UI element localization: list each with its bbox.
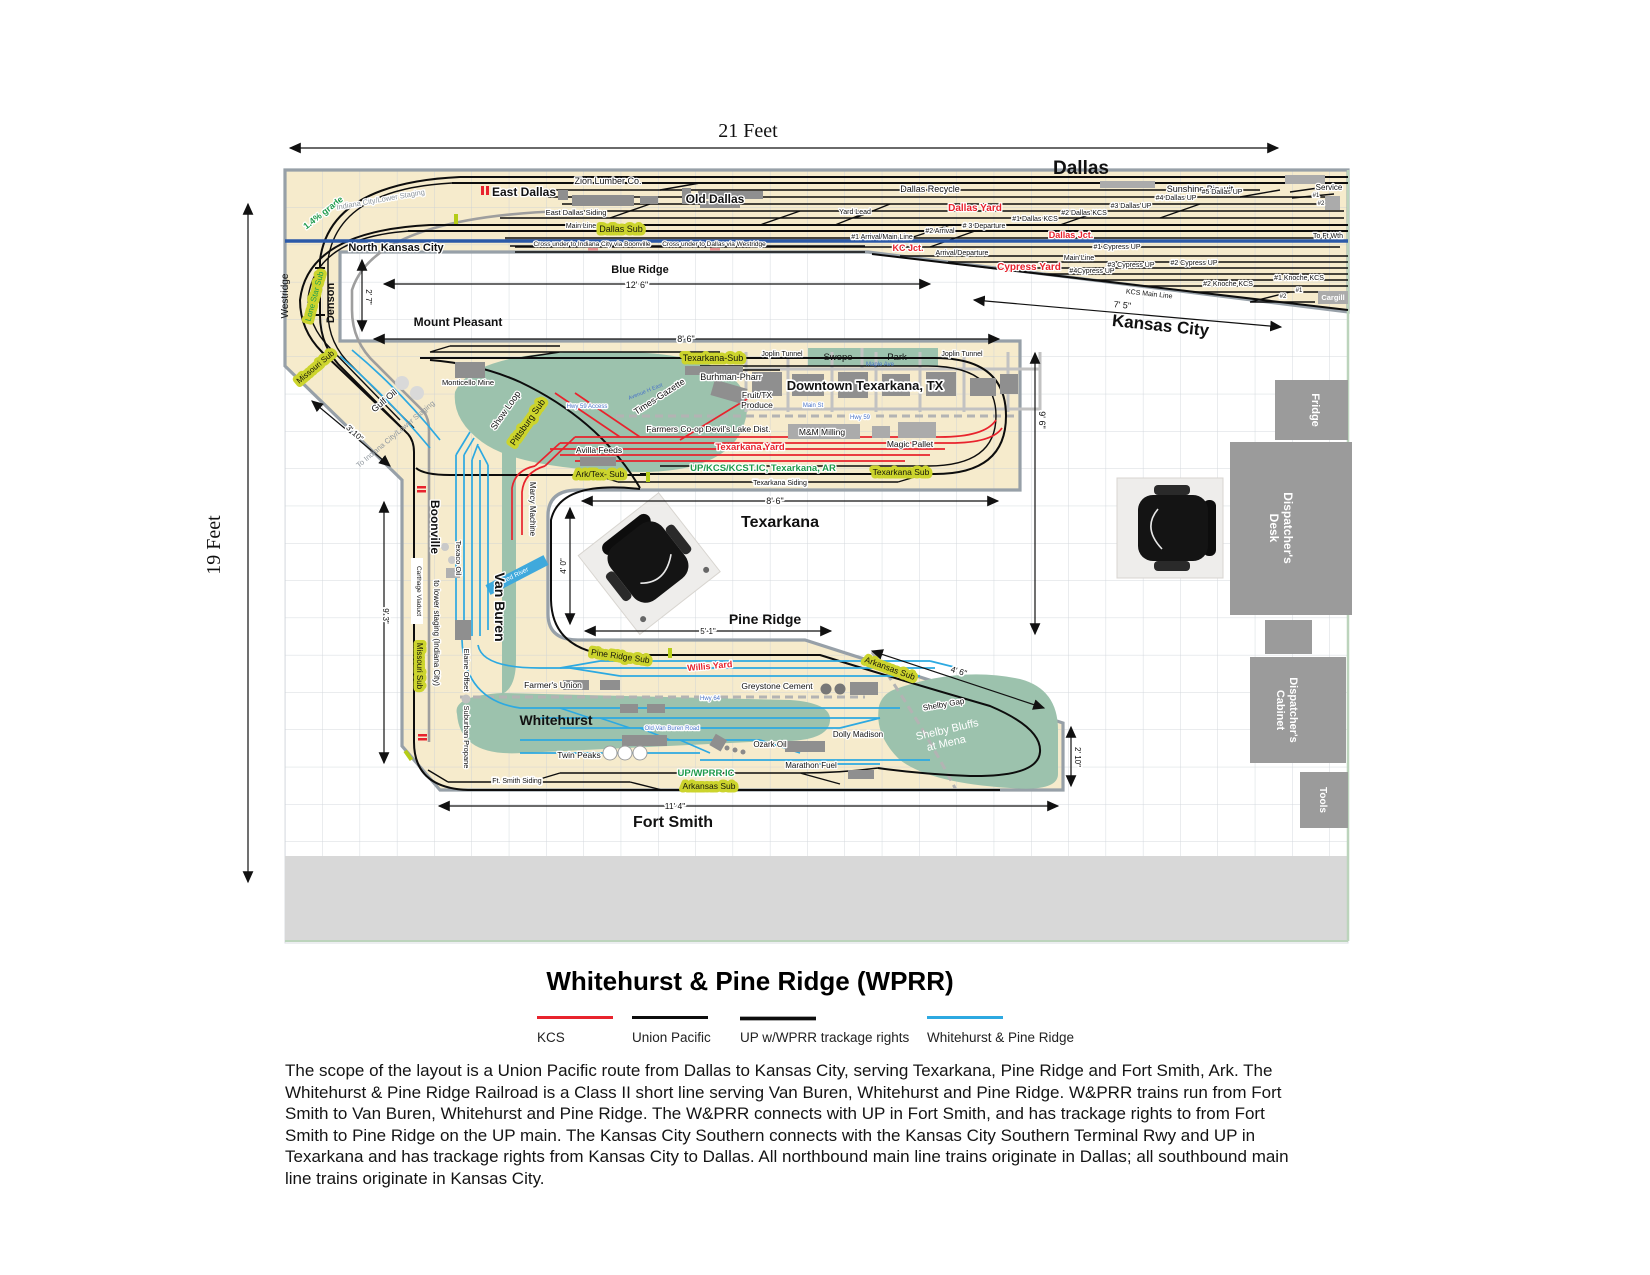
track-d1-label: #1 Dallas KCS [1012, 216, 1058, 223]
ark-tex-sub-label: Ark/Tex- Sub [576, 469, 625, 479]
side-table [1265, 620, 1312, 654]
track-d2-label: #2 Dallas KCS [1061, 210, 1107, 217]
hwy59-access-label: Hwy 59 Access [567, 404, 608, 410]
legend-wprr-label: Whitehurst & Pine Ridge [927, 1030, 1074, 1045]
town-westridge: Westridge [280, 273, 291, 318]
legend-wprr-swatch [927, 1016, 1003, 1019]
farmers-union-label: Farmer's Union [524, 680, 582, 690]
burhman-pharr-label: Burhman-Pharr [700, 372, 762, 382]
texarkana-sub-n-label: Texarkana-Sub [683, 353, 744, 363]
page-title: Whitehurst & Pine Ridge (WPRR) [400, 966, 1100, 997]
up-wprr-ic-label: UP/WPRR IC [678, 768, 735, 779]
missouri-sub-label-2: Missouri Sub [415, 643, 424, 690]
dim-8-6-tx: 8' 6" [766, 496, 783, 506]
main-line-label-1: Main Line [566, 223, 596, 230]
texarkana-siding-label: Texarkana Siding [753, 480, 807, 487]
dim-5-1: 5' 1" [700, 627, 716, 636]
town-denson: Denson [325, 283, 337, 324]
track-plan-page: Fridge Dispatcher'sDesk Dispatcher'sCabi… [0, 0, 1650, 1275]
track-kno1-label: #1 Knoche KCS [1274, 275, 1324, 282]
dim-2-7: 2' 7" [364, 289, 373, 305]
dallas-yard-label: Dallas Yard [948, 203, 1002, 214]
zion-lumber-label: Zion Lumber Co. [574, 176, 641, 186]
texaco-oil-label: Texaco Oil [454, 540, 463, 575]
legend-up-wprr-label: UP w/WPRR trackage rights [740, 1030, 909, 1045]
up-kcs-ic-label: UP/KCS/KCST.IC, Texarkana, AR [690, 463, 836, 474]
to-ft-wth-label: To Ft Wth [1313, 233, 1343, 240]
texarkana-sub-s-label: Texarkana Sub [873, 467, 930, 477]
dallas-sub-label: Dallas Sub [599, 224, 643, 234]
dim-4-0: 4' 0" [559, 558, 568, 574]
ozark-oil-label: Ozark Oil [753, 740, 787, 749]
cross-under-westridge-label: Cross under to Dallas via Westridge [662, 241, 766, 248]
legend-kcs-swatch [537, 1016, 613, 1019]
main-line-label-2: Main Line [1064, 255, 1094, 262]
east-dallas-siding-label: East Dallas Siding [546, 208, 607, 217]
service-2-label: #2 [1318, 201, 1325, 207]
town-van-buren: Van Buren [492, 572, 508, 641]
town-boonville: Boonville [428, 500, 442, 554]
track-d5-label: #5 Dallas UP [1202, 189, 1243, 196]
track-arr1-label: #1 Arrival/Main Line [851, 234, 913, 241]
avilla-feeds-label: Avilla Feeds [576, 445, 622, 455]
town-fort-smith: Fort Smith [633, 814, 713, 831]
town-dallas: Dallas [1053, 158, 1109, 179]
track-cyp1-label: #1 Cypress UP [1093, 244, 1140, 251]
marathon-fuel-label: Marathon Fuel [785, 761, 837, 770]
texarkana-yard-label: Texarkana Yard [715, 442, 785, 453]
tools-label: Tools [1317, 787, 1328, 813]
town-texarkana: Texarkana [741, 514, 819, 531]
width-dim-label: 21 Feet [718, 120, 778, 142]
layout-diagram: Fridge Dispatcher'sDesk Dispatcher'sCabi… [0, 0, 1650, 950]
town-north-kansas-city: North Kansas City [348, 242, 444, 254]
hwy59-label: Hwy 59 [850, 415, 871, 421]
dallas-jct-label: Dallas Jct. [1049, 230, 1094, 240]
office-chair-dispatcher [1117, 478, 1223, 578]
magic-pallet-label: Magic Pallet [887, 439, 934, 449]
dim-12-6: 12' 6" [626, 280, 648, 290]
track-dep3-label: # 3 Departure [963, 223, 1006, 230]
town-mount-pleasant: Mount Pleasant [414, 315, 503, 329]
town-old-dallas: Old Dallas [686, 192, 745, 206]
joplin-tunnel-label-2: Joplin Tunnel [941, 351, 983, 358]
service-label: Service [1316, 183, 1343, 192]
track-arr2-label: #2 Arrival [925, 228, 955, 235]
track-d3-label: #3 Dallas UP [1111, 203, 1152, 210]
dolly-madison-label: Dolly Madison [833, 730, 883, 739]
dim-9-3: 9' 3" [381, 608, 390, 624]
floor-strip [285, 856, 1348, 941]
yard-lead-label: Yard Lead [839, 209, 871, 216]
dim-8-6-mp: 8' 6" [677, 334, 694, 344]
joplin-tunnel-label-1: Joplin Tunnel [761, 351, 803, 358]
cargill-2-label: #2 [1280, 294, 1287, 300]
dim-9-6: 9' 6" [1037, 411, 1047, 428]
kc-jct-label: KC Jct. [892, 243, 923, 253]
track-kno2-label: #2 Knoche KCS [1203, 281, 1253, 288]
hwy64-label: Hwy 64 [700, 696, 721, 702]
dim-2-10: 2' 10" [1073, 747, 1082, 767]
height-dim-label: 19 Feet [203, 515, 225, 575]
legend-kcs-label: KCS [537, 1030, 565, 1045]
dim-7-5: 7' 5" [1113, 299, 1131, 311]
track-d4-label: #4 Dallas UP [1156, 195, 1197, 202]
marcy-machine-label: Marcy Machine [528, 482, 537, 537]
suburban-propane-label: Suburban Propane [462, 706, 471, 769]
ft-smith-siding-label: Ft. Smith Siding [492, 778, 542, 785]
devils-lake-label: Devil's Lake Dist. [706, 424, 771, 434]
cargill-label: Cargill [1321, 293, 1344, 302]
cypress-yard-label: Cypress Yard [997, 262, 1061, 273]
mm-milling-label: M&M Milling [799, 427, 846, 437]
cargill-1-label: #1 [1296, 288, 1303, 294]
downtown-texarkana-label: Downtown Texarkana, TX [787, 378, 944, 393]
arkansas-sub-label-2: Arkansas Sub [683, 781, 736, 791]
town-whitehurst: Whitehurst [519, 712, 592, 728]
arrival-departure-label: Arrival/Departure [936, 250, 989, 257]
town-east-dallas: East Dallas [492, 185, 556, 199]
to-lower-staging-label: to lower staging (Indiana City) [432, 580, 441, 686]
dim-11-4: 11' 4" [665, 801, 686, 811]
elaine-offset-label: Elaine Offset [462, 649, 471, 693]
monticello-mine-label: Monticello Mine [442, 378, 494, 387]
legend-up-swatch [632, 1016, 708, 1019]
dallas-recycle-label: Dallas Recycle [900, 184, 960, 194]
town-blue-ridge: Blue Ridge [611, 264, 668, 276]
cross-under-boonville-label: Cross under to Indiana City via Boonvill… [533, 241, 650, 248]
twin-peaks-label: Twin Peaks [557, 750, 600, 760]
legend-up-label: Union Pacific [632, 1030, 711, 1045]
track-cyp2-label: #2 Cypress UP [1170, 260, 1217, 267]
greystone-cement-label: Greystone Cement [741, 681, 813, 691]
old-van-buren-road-label: Old Van Buren Road [645, 726, 700, 732]
swope-label: Swope [823, 352, 852, 363]
maple-ave-label: Maple Ave [866, 362, 895, 368]
main-st-label: Main St [803, 403, 824, 409]
legend-up-wprr-swatch [740, 1016, 816, 1021]
track-cyp4-label: #4Cypress UP [1069, 268, 1114, 275]
track-cyp3-label: #3 Cypress UP [1107, 262, 1154, 269]
fruit-tx-label: Fruit/TXProduce [741, 390, 773, 410]
carthage-viaduct-label: Carthage Viaduct [415, 566, 422, 616]
farmers-coop-label: Farmers Co-op [646, 424, 703, 434]
fridge-label: Fridge [1309, 393, 1321, 427]
town-pine-ridge: Pine Ridge [729, 611, 802, 627]
service-1-label: #1 [1313, 193, 1320, 199]
layout-description: The scope of the layout is a Union Pacif… [285, 1060, 1300, 1189]
